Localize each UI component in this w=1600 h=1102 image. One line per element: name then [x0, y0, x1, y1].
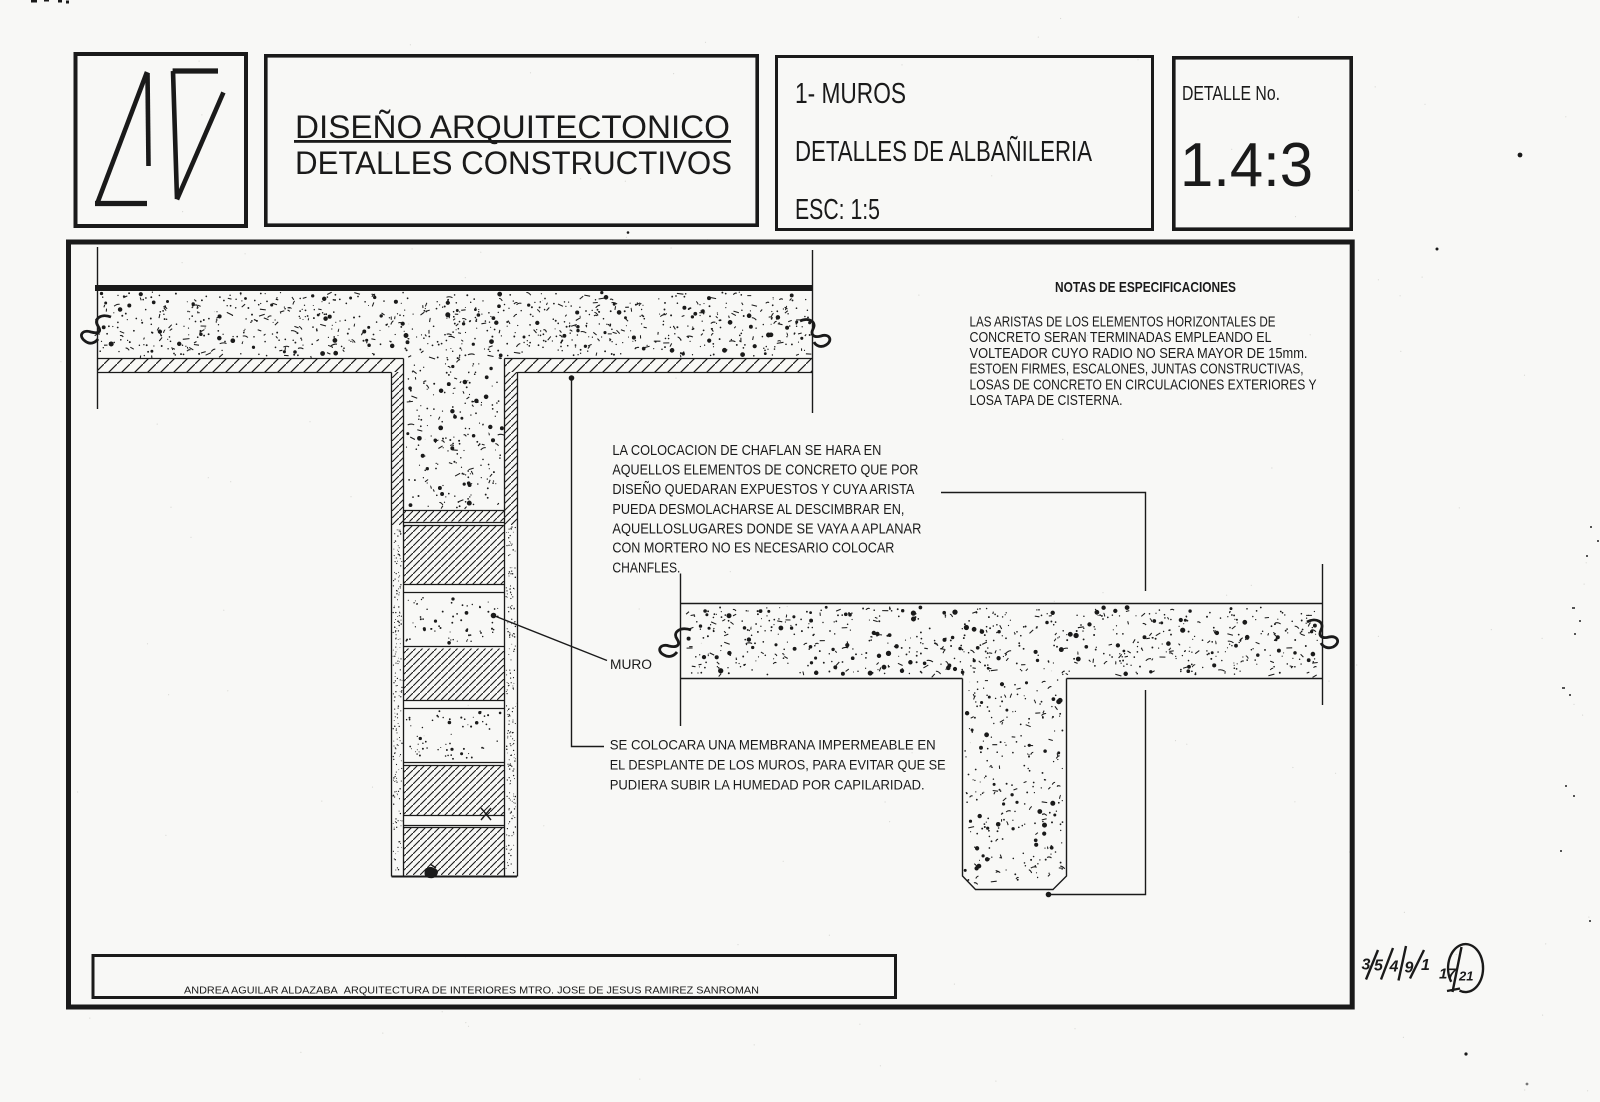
svg-text:21: 21	[1458, 969, 1473, 984]
svg-text:4: 4	[1389, 959, 1399, 976]
svg-text:AQUELLOS ELEMENTOS DE CONCRETO: AQUELLOS ELEMENTOS DE CONCRETO QUE POR	[612, 461, 918, 478]
svg-text:1- MUROS: 1- MUROS	[795, 78, 906, 110]
svg-text:EL DESPLANTE DE LOS MUROS, PAR: EL DESPLANTE DE LOS MUROS, PARA EVITAR Q…	[610, 757, 946, 773]
svg-text:DISEÑO QUEDARAN EXPUESTOS Y CU: DISEÑO QUEDARAN EXPUESTOS Y CUYA ARISTA	[612, 481, 914, 498]
svg-text:DETALLE No.: DETALLE No.	[1182, 83, 1280, 105]
svg-text:CON MORTERO NO ES NECESARIO CO: CON MORTERO NO ES NECESARIO COLOCAR	[612, 540, 894, 557]
svg-text:CHANFLES.: CHANFLES.	[612, 559, 680, 576]
svg-text:NOTAS DE ESPECIFICACIONES: NOTAS DE ESPECIFICACIONES	[1055, 279, 1236, 296]
svg-text:ESTOEN FIRMES, ESCALONES, JUNT: ESTOEN FIRMES, ESCALONES, JUNTAS CONSTRU…	[970, 361, 1304, 378]
svg-text:ESC: 1:5: ESC: 1:5	[795, 194, 880, 226]
svg-text:VOLTEADOR CUYO RADIO NO SERA M: VOLTEADOR CUYO RADIO NO SERA MAYOR DE 15…	[970, 345, 1308, 362]
svg-text:PUDIERA SUBIR LA HUMEDAD POR C: PUDIERA SUBIR LA HUMEDAD POR CAPILARIDAD…	[610, 777, 925, 793]
svg-text:AQUELLOSLUGARES DONDE SE VAYA: AQUELLOSLUGARES DONDE SE VAYA A APLANAR	[612, 520, 921, 537]
svg-text:PUEDA DESMOLACHARSE AL DESCIMB: PUEDA DESMOLACHARSE AL DESCIMBRAR EN,	[612, 501, 904, 518]
svg-text:DETALLES DE ALBAÑILERIA: DETALLES DE ALBAÑILERIA	[795, 134, 1093, 168]
svg-text:CONCRETO SERAN TERMINADAS EMPL: CONCRETO SERAN TERMINADAS EMPLEANDO EL	[970, 329, 1272, 346]
svg-text:LOSA TAPA DE CISTERNA.: LOSA TAPA DE CISTERNA.	[970, 392, 1123, 409]
svg-text:LAS ARISTAS DE LOS ELEMENTOS H: LAS ARISTAS DE LOS ELEMENTOS HORIZONTALE…	[970, 314, 1276, 331]
svg-text:1.4:3: 1.4:3	[1180, 131, 1313, 200]
svg-text:LA COLOCACION DE CHAFLAN SE HA: LA COLOCACION DE CHAFLAN SE HARA EN	[612, 442, 881, 459]
svg-text:5: 5	[1374, 958, 1384, 975]
svg-text:MURO: MURO	[610, 656, 652, 672]
svg-text:ANDREA AGUILAR ALDAZABA ARQUI: ANDREA AGUILAR ALDAZABA ARQUITECTURA DE …	[184, 985, 759, 997]
svg-text:SE COLOCARA UNA MEMBRANA IMPER: SE COLOCARA UNA MEMBRANA IMPERMEABLE EN	[610, 737, 936, 753]
svg-text:1: 1	[1421, 957, 1430, 974]
svg-text:DETALLES CONSTRUCTIVOS: DETALLES CONSTRUCTIVOS	[295, 145, 732, 181]
svg-text:LOSAS DE CONCRETO EN CIRCULACI: LOSAS DE CONCRETO EN CIRCULACIONES EXTER…	[970, 376, 1317, 393]
svg-text:DISEÑO ARQUITECTONICO: DISEÑO ARQUITECTONICO	[295, 109, 730, 145]
